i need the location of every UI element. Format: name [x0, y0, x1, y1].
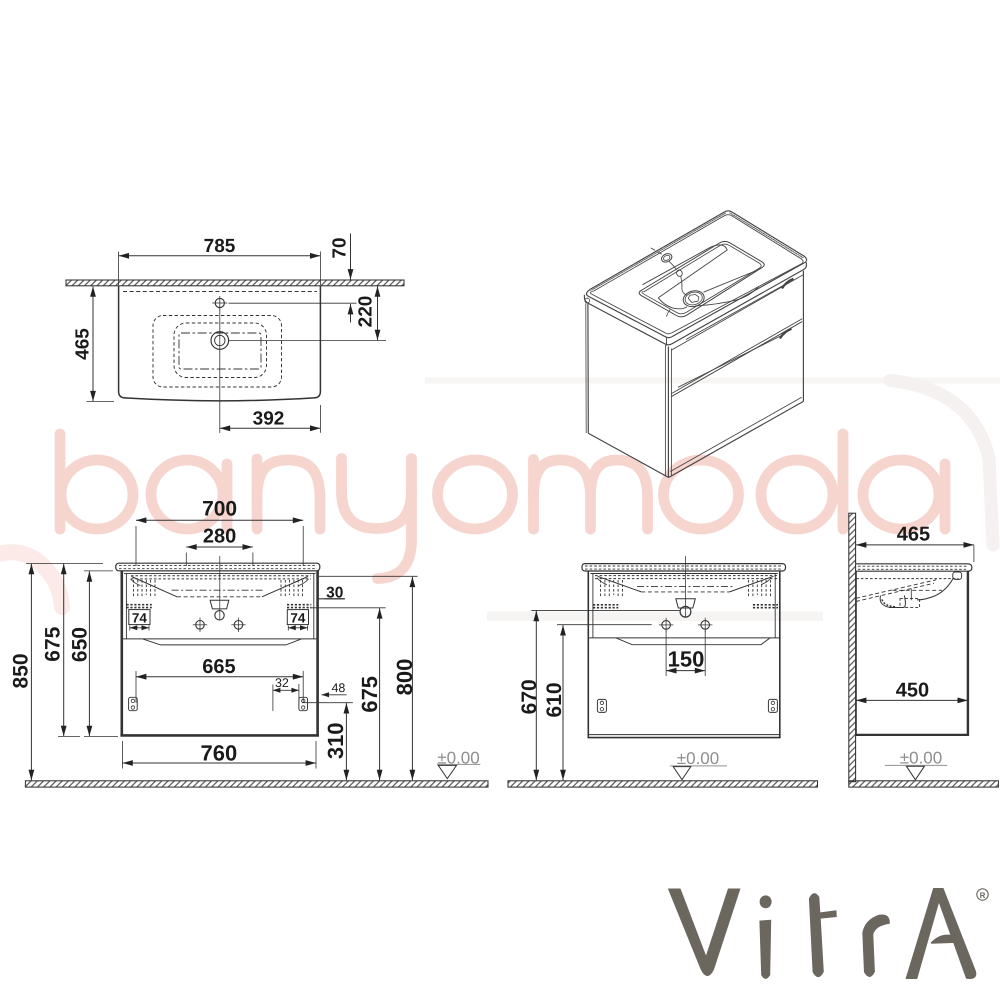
svg-text:665: 665 — [202, 656, 235, 678]
svg-text:610: 610 — [543, 682, 566, 717]
svg-text:32: 32 — [275, 676, 289, 690]
svg-text:850: 850 — [10, 653, 33, 688]
svg-text:465: 465 — [897, 524, 930, 546]
svg-text:70: 70 — [329, 237, 350, 258]
svg-text:465: 465 — [72, 328, 93, 360]
svg-text:675: 675 — [357, 676, 382, 713]
svg-text:310: 310 — [323, 722, 348, 759]
svg-text:74: 74 — [132, 610, 148, 625]
svg-text:±0.00: ±0.00 — [677, 749, 719, 768]
svg-text:675: 675 — [42, 626, 65, 661]
svg-text:392: 392 — [253, 408, 285, 429]
svg-text:R: R — [980, 891, 986, 900]
svg-text:±0.00: ±0.00 — [437, 749, 479, 768]
svg-text:670: 670 — [518, 679, 541, 714]
svg-text:760: 760 — [201, 740, 238, 765]
svg-text:150: 150 — [668, 646, 705, 671]
svg-text:220: 220 — [355, 296, 376, 328]
svg-text:650: 650 — [68, 627, 91, 662]
svg-text:48: 48 — [331, 681, 345, 695]
svg-text:785: 785 — [204, 236, 236, 257]
svg-text:700: 700 — [202, 498, 237, 521]
svg-text:74: 74 — [290, 610, 306, 625]
svg-text:800: 800 — [392, 659, 417, 696]
svg-text:450: 450 — [896, 680, 929, 702]
svg-text:±0.00: ±0.00 — [900, 749, 942, 768]
svg-text:280: 280 — [203, 526, 236, 548]
